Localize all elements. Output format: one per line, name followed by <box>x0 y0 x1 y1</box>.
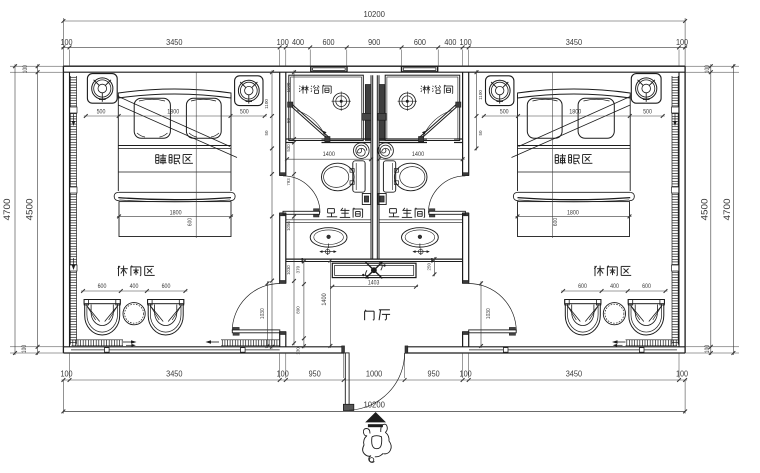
svg-text:400: 400 <box>610 283 619 290</box>
svg-text:100: 100 <box>60 37 72 47</box>
svg-text:4700: 4700 <box>2 198 12 220</box>
svg-text:400: 400 <box>292 37 304 47</box>
svg-text:4500: 4500 <box>25 198 35 220</box>
svg-text:100: 100 <box>60 369 72 379</box>
svg-text:600: 600 <box>642 283 651 290</box>
svg-text:400: 400 <box>130 283 139 290</box>
svg-text:100: 100 <box>676 37 688 47</box>
svg-text:100: 100 <box>676 369 688 379</box>
svg-text:1100: 1100 <box>264 99 269 109</box>
svg-text:250: 250 <box>426 263 431 271</box>
svg-text:3450: 3450 <box>566 37 583 47</box>
svg-text:100: 100 <box>21 345 28 353</box>
svg-text:1056: 1056 <box>286 221 291 231</box>
svg-text:1030: 1030 <box>486 308 492 319</box>
svg-text:600: 600 <box>188 218 194 226</box>
svg-text:100: 100 <box>277 369 289 379</box>
svg-text:3450: 3450 <box>566 369 583 379</box>
svg-text:4700: 4700 <box>722 198 732 220</box>
svg-text:890: 890 <box>296 306 301 314</box>
svg-text:600: 600 <box>578 283 587 290</box>
svg-text:500: 500 <box>643 108 652 115</box>
svg-text:1030: 1030 <box>260 308 266 319</box>
svg-text:1800: 1800 <box>167 108 179 115</box>
svg-text:1000: 1000 <box>366 369 383 379</box>
svg-text:4500: 4500 <box>700 198 710 220</box>
svg-text:600: 600 <box>553 218 559 226</box>
svg-text:1800: 1800 <box>569 108 581 115</box>
svg-text:900: 900 <box>368 37 380 47</box>
svg-text:50: 50 <box>478 130 483 136</box>
svg-text:100: 100 <box>22 65 29 73</box>
svg-text:100: 100 <box>704 345 711 353</box>
svg-text:130: 130 <box>296 347 301 355</box>
svg-text:370: 370 <box>296 265 301 273</box>
svg-text:1403: 1403 <box>368 280 380 287</box>
svg-text:500: 500 <box>500 108 509 115</box>
svg-text:100: 100 <box>460 37 472 47</box>
svg-text:1800: 1800 <box>170 209 182 216</box>
svg-text:1400: 1400 <box>412 151 425 158</box>
svg-text:600: 600 <box>162 283 171 290</box>
svg-text:1400: 1400 <box>321 293 328 306</box>
svg-text:1800: 1800 <box>567 209 579 216</box>
svg-text:500: 500 <box>97 108 106 115</box>
svg-text:50: 50 <box>264 130 269 136</box>
svg-text:100: 100 <box>460 369 472 379</box>
svg-text:1030: 1030 <box>286 265 291 275</box>
svg-text:950: 950 <box>309 369 321 379</box>
svg-text:1100: 1100 <box>478 90 483 100</box>
svg-text:600: 600 <box>98 283 107 290</box>
svg-text:400: 400 <box>444 37 456 47</box>
svg-text:10200: 10200 <box>363 9 385 19</box>
svg-text:600: 600 <box>322 37 334 47</box>
svg-text:600: 600 <box>414 37 426 47</box>
svg-text:793: 793 <box>286 178 291 186</box>
svg-text:1400: 1400 <box>323 151 336 158</box>
svg-text:530: 530 <box>286 144 291 152</box>
svg-text:10200: 10200 <box>363 400 385 410</box>
svg-text:100: 100 <box>277 37 289 47</box>
svg-text:950: 950 <box>428 369 440 379</box>
svg-text:500: 500 <box>240 108 249 115</box>
svg-text:3450: 3450 <box>166 369 183 379</box>
svg-text:3450: 3450 <box>166 37 183 47</box>
